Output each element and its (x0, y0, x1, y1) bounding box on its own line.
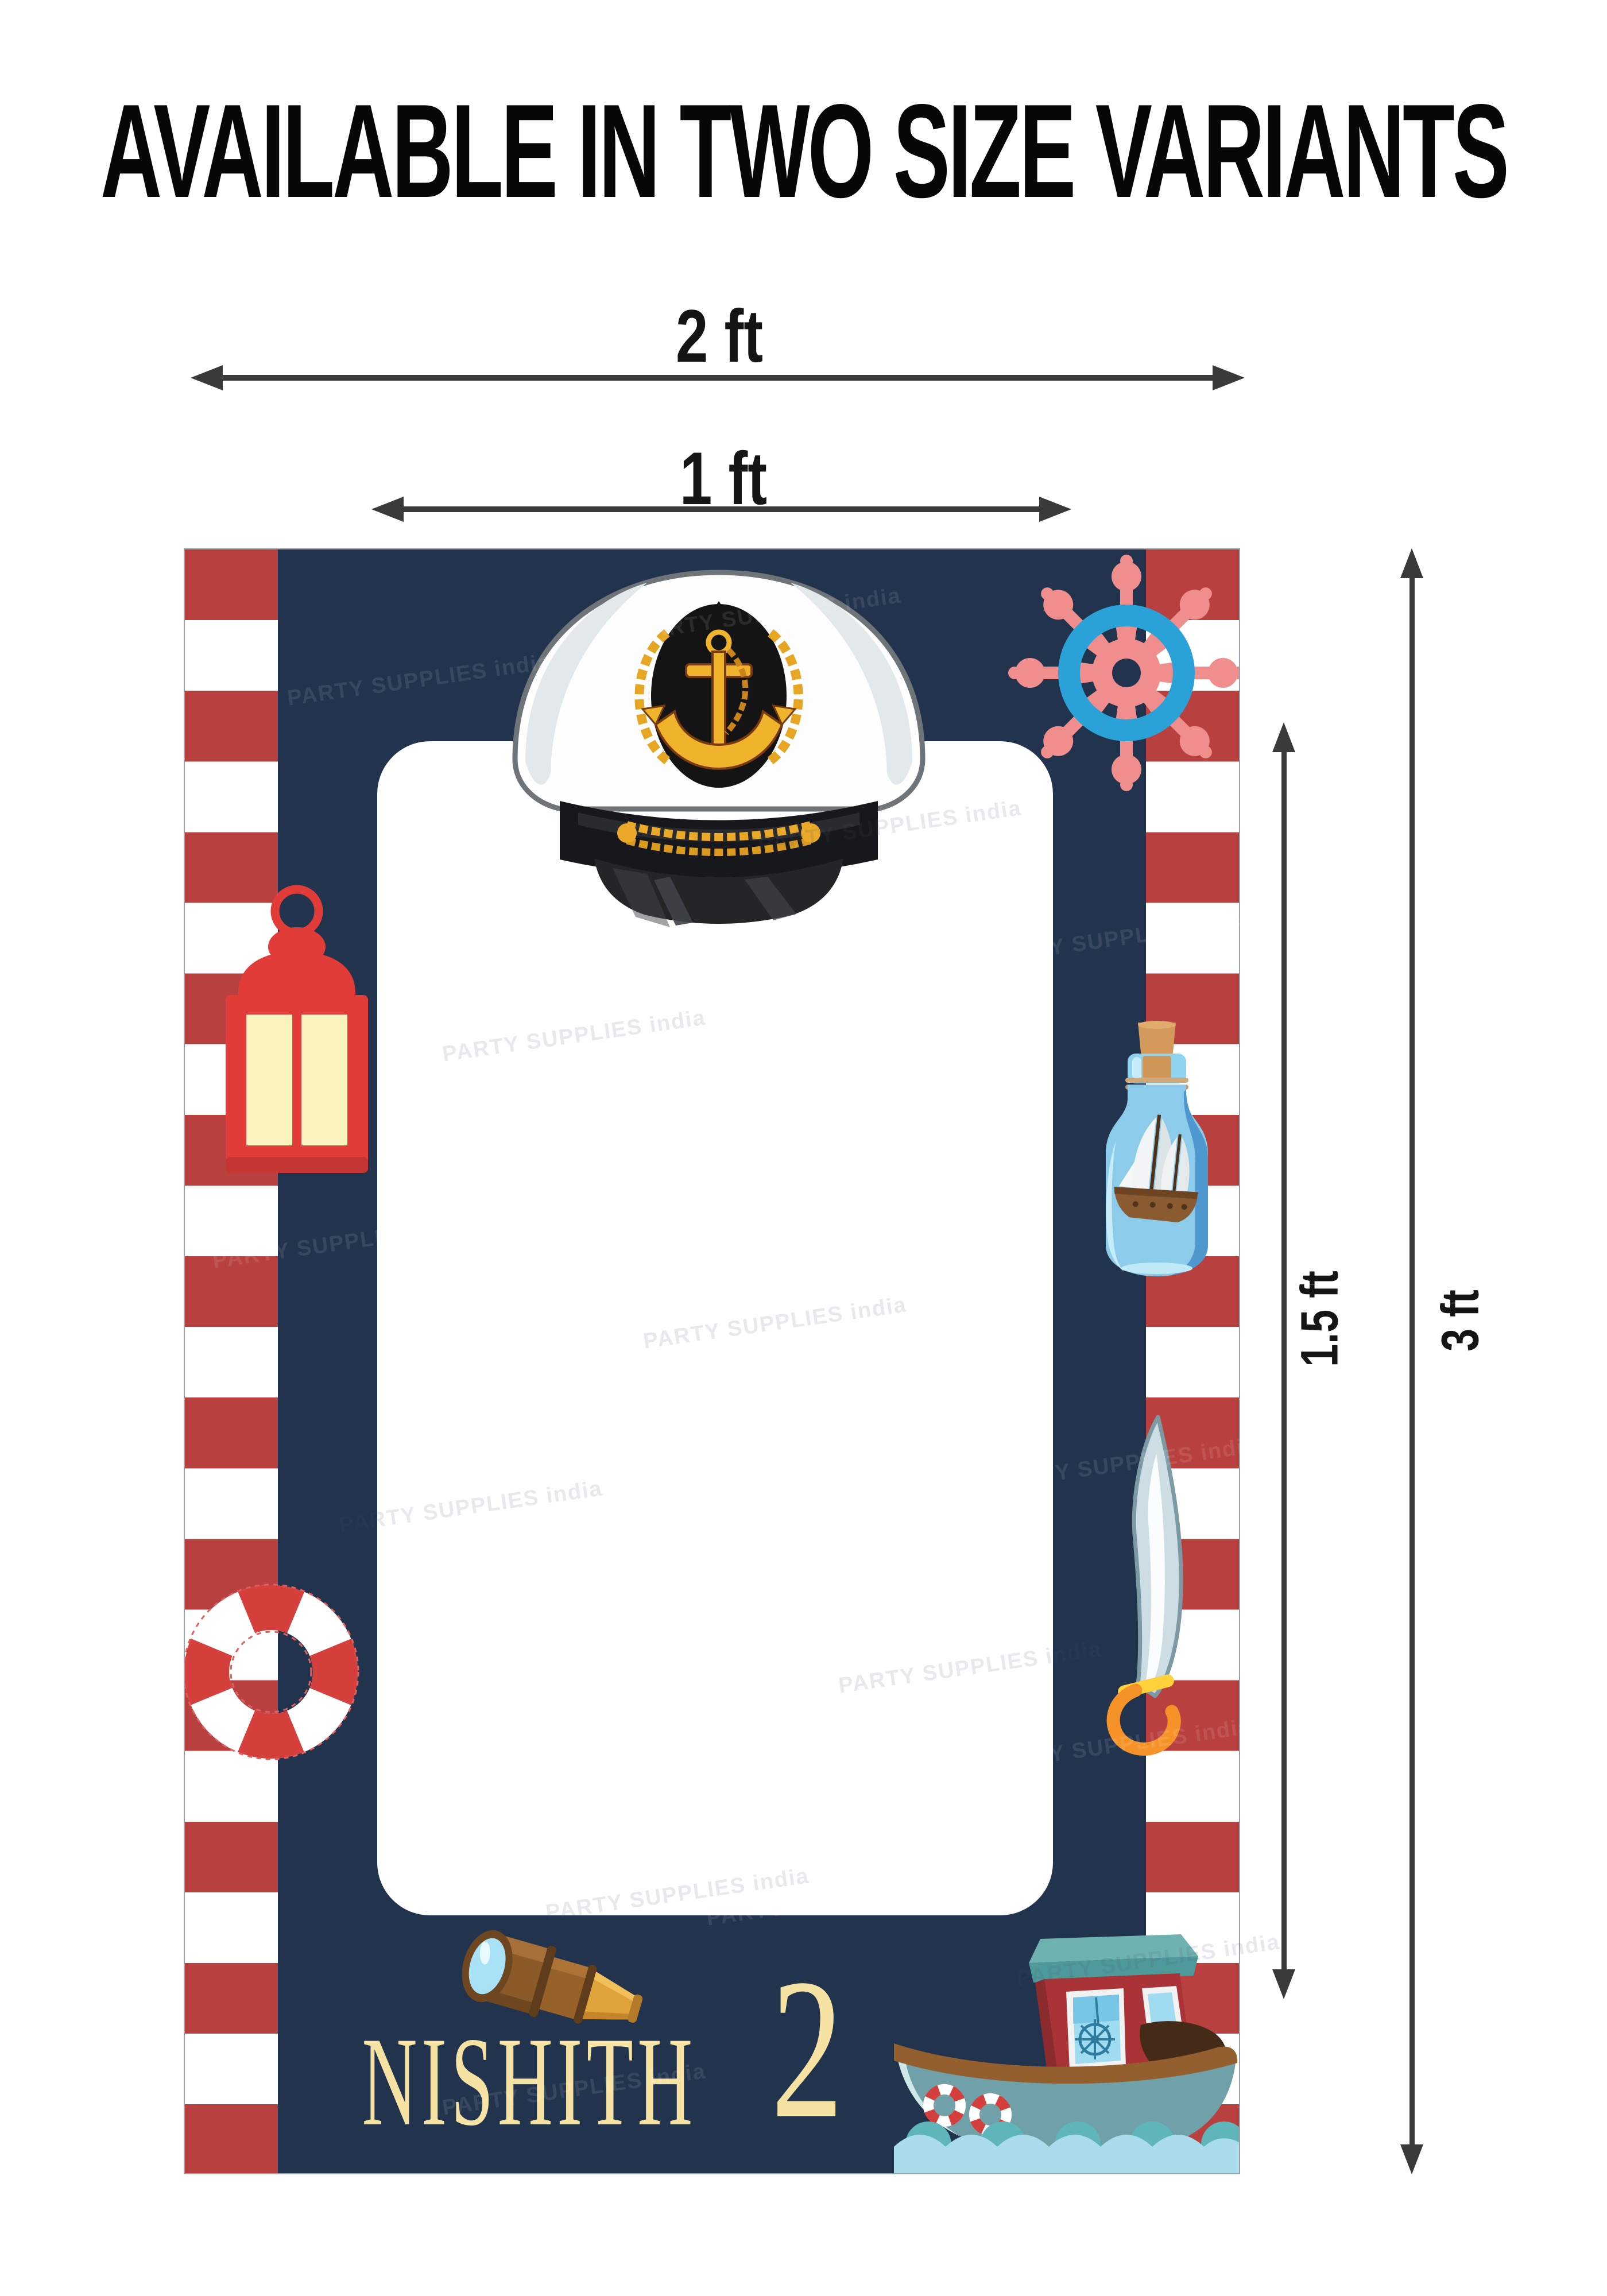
striped-border-left (185, 549, 278, 2173)
product-mockup-page: AVAILABLE IN TWO SIZE VARIANTS 2 ft 1 ft… (0, 0, 1607, 2296)
outer-width-arrow (223, 375, 1213, 381)
inner-width-arrow (404, 506, 1039, 512)
child-age-text: 2 (771, 1948, 843, 2149)
inner-height-arrow (1281, 752, 1287, 1969)
outer-height-arrow (1409, 578, 1415, 2144)
ship-in-bottle-icon (1097, 1020, 1217, 1279)
outer-width-label: 2 ft (676, 299, 763, 373)
inner-width-label: 1 ft (680, 441, 767, 516)
ship-wheel-icon (1003, 549, 1240, 796)
page-title: AVAILABLE IN TWO SIZE VARIANTS (100, 85, 1507, 218)
lifebuoy-icon (184, 1580, 363, 1764)
outer-height-label: 3 ft (1434, 1290, 1486, 1352)
lantern-icon (216, 882, 377, 1198)
inner-height-label: 1.5 ft (1293, 1271, 1346, 1366)
